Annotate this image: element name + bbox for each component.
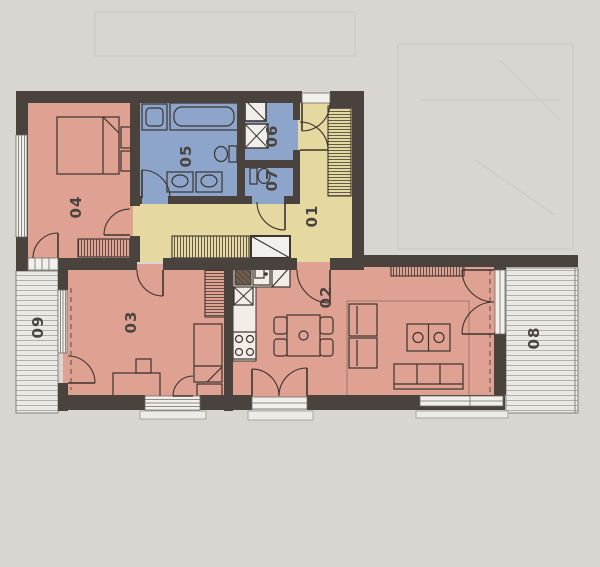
window-living-bottom: [420, 396, 503, 406]
balcony-door-threshold-04: [28, 258, 58, 270]
wall: [352, 255, 578, 267]
room-label-05: 05: [177, 145, 195, 168]
room-label-02: 02: [317, 286, 335, 309]
balcony-09-hatch: [16, 271, 58, 413]
room-label-08: 08: [525, 327, 543, 350]
duct-shaft-wc: [245, 100, 266, 121]
wall: [58, 258, 68, 290]
wall: [58, 258, 137, 270]
wall: [352, 91, 364, 267]
wall: [284, 196, 300, 204]
room-label-06: 06: [263, 125, 281, 148]
window-sill: [140, 411, 206, 419]
wall: [168, 196, 252, 204]
wall: [200, 395, 252, 410]
wall: [494, 332, 506, 395]
wall: [293, 150, 300, 204]
wall: [245, 160, 293, 168]
wardrobe-hall-right: [328, 106, 351, 196]
wall: [293, 102, 300, 120]
window-sill: [248, 411, 313, 420]
wall: [130, 102, 140, 206]
wardrobe-hall-bottom: [172, 236, 249, 258]
window-bedroom-04-left: [16, 135, 27, 237]
wall: [237, 102, 245, 204]
room-label-09: 09: [29, 316, 47, 339]
duct-shaft-hall: [251, 236, 290, 258]
window-room-03-bottom: [145, 396, 200, 410]
floorplan-photo: 01 02 03 04 05 06 07 08 09: [0, 0, 600, 567]
room-label-03: 03: [122, 311, 140, 334]
floorplan-drawing: 01 02 03 04 05 06 07 08 09: [0, 0, 600, 567]
window-sill: [416, 411, 508, 418]
wall: [494, 267, 506, 270]
room-label-01: 01: [303, 205, 321, 228]
entrance-threshold: [302, 93, 330, 103]
wall: [16, 91, 302, 103]
room-label-04: 04: [67, 196, 85, 219]
balcony-09: [16, 271, 58, 413]
room-label-07: 07: [263, 169, 281, 192]
wall: [130, 196, 142, 204]
wall: [224, 258, 233, 411]
balcony-door-threshold-08: [495, 270, 505, 334]
wardrobe-bedroom-04: [78, 239, 134, 257]
room-03-room-floor: [63, 264, 228, 400]
french-door-threshold-bottom: [252, 397, 307, 409]
wall: [58, 395, 145, 410]
